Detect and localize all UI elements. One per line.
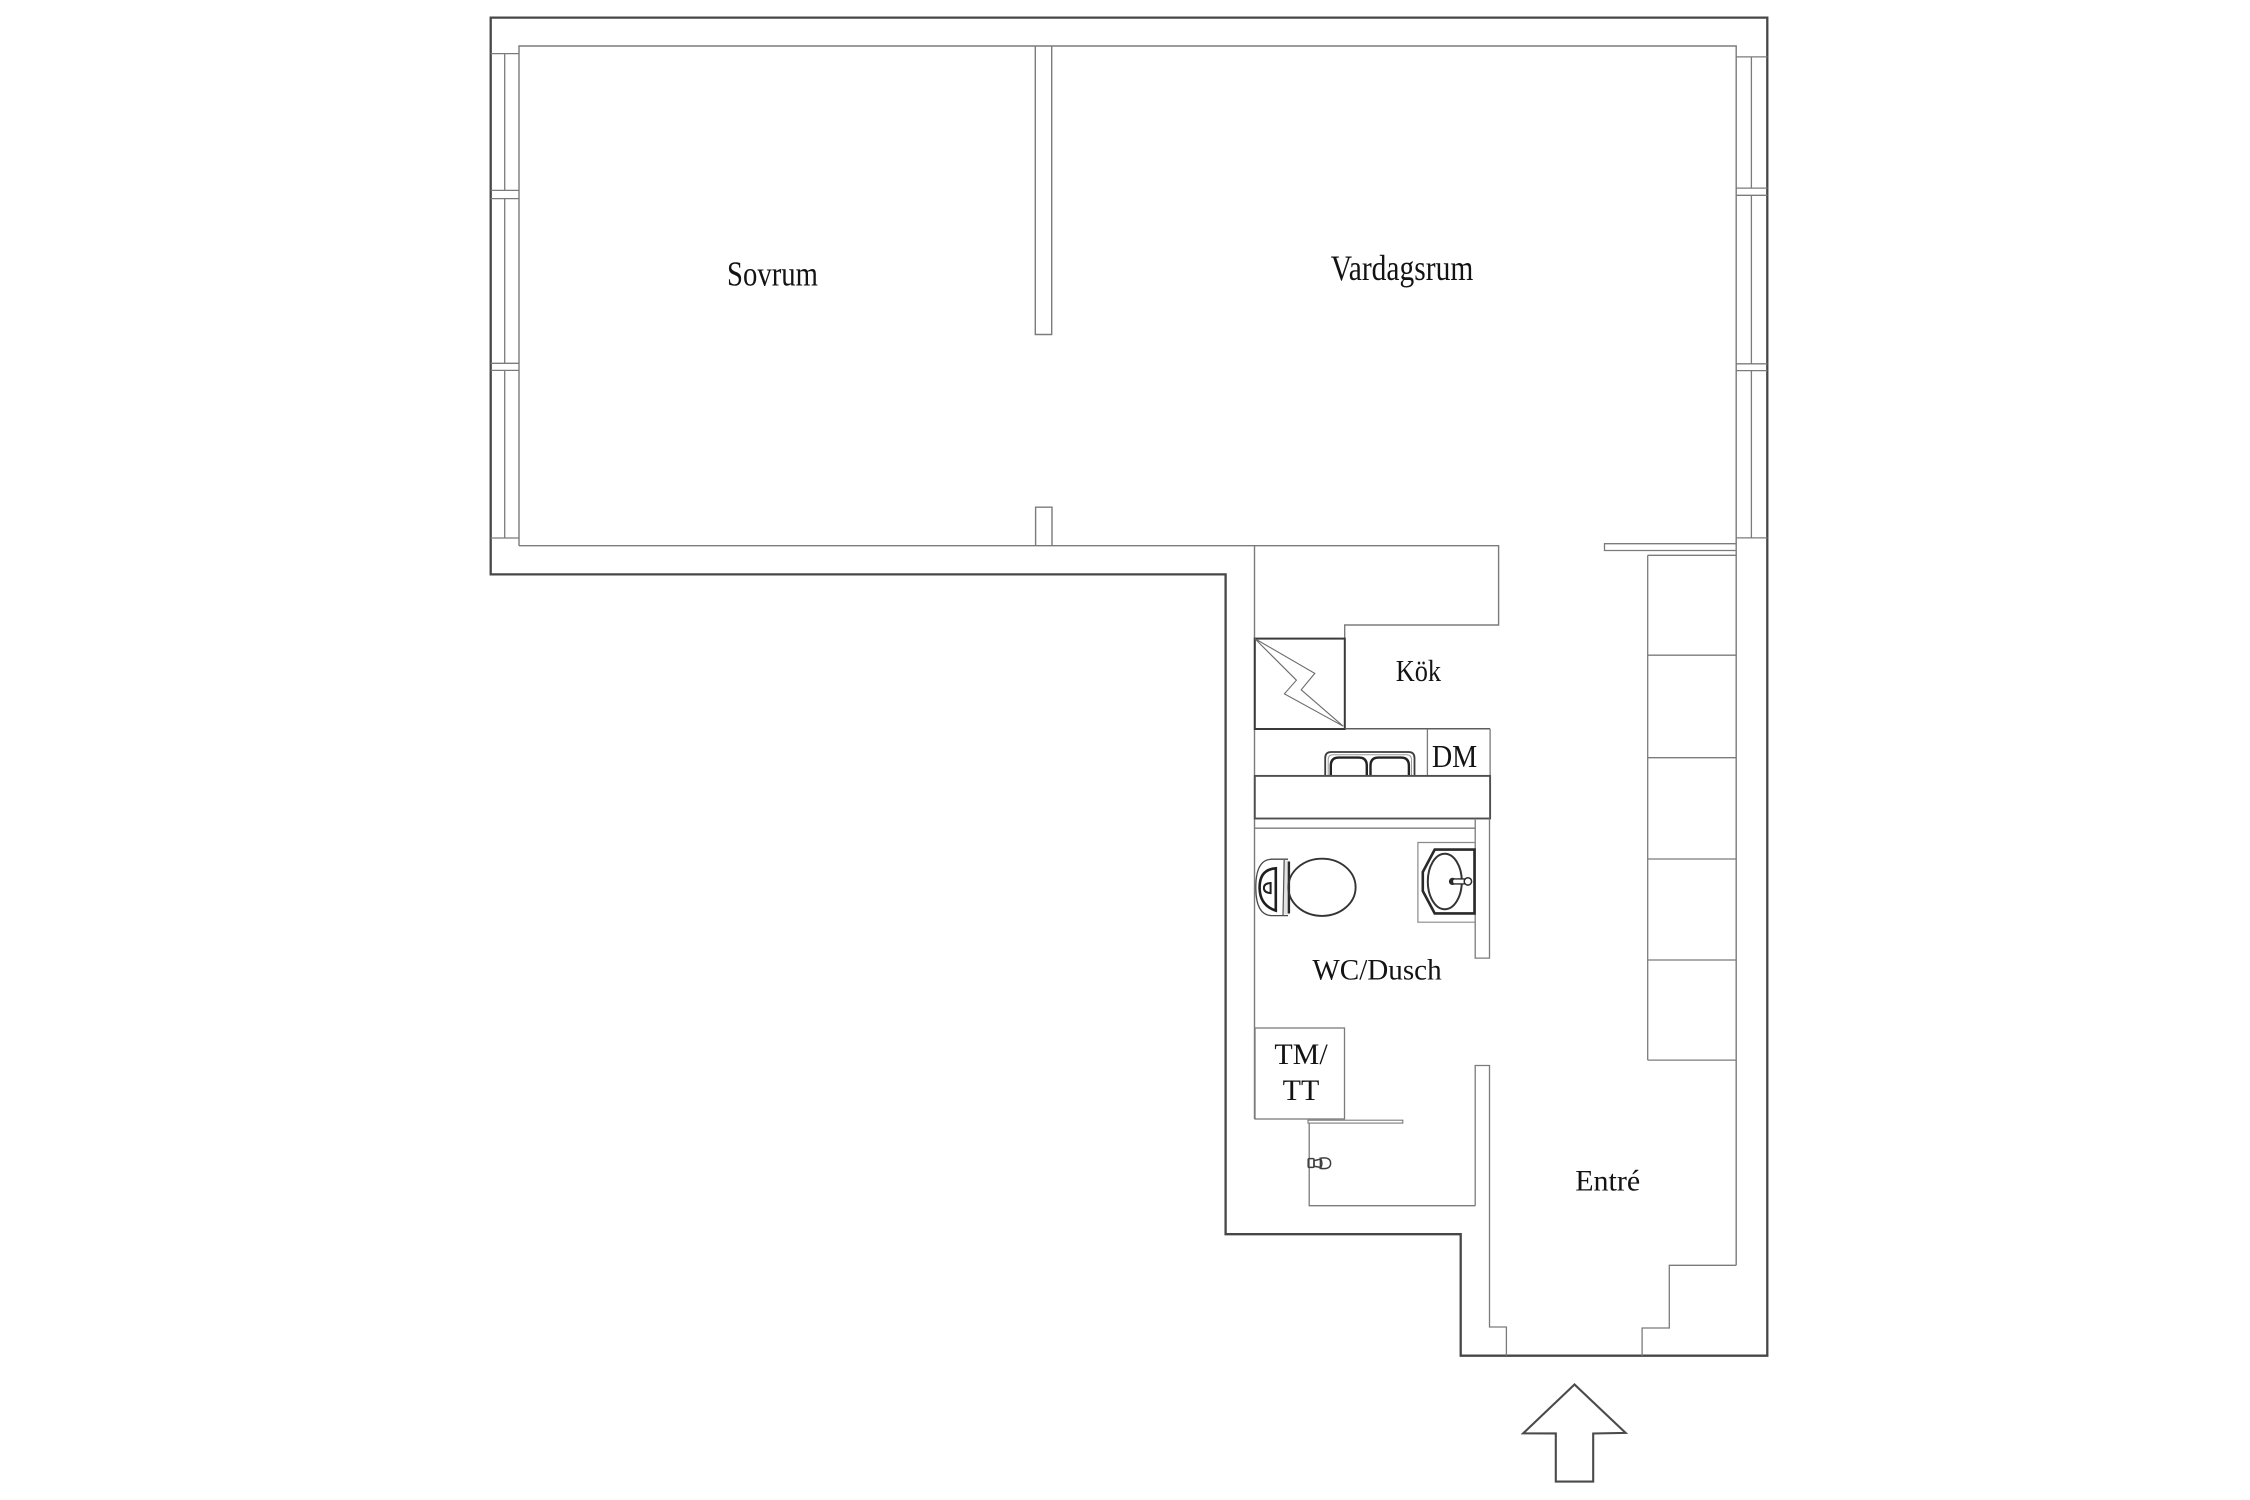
svg-text:Vardagsrum: Vardagsrum: [1331, 249, 1474, 288]
svg-text:Entré: Entré: [1575, 1164, 1640, 1197]
svg-text:WC/Dusch: WC/Dusch: [1312, 954, 1442, 986]
svg-text:Sovrum: Sovrum: [727, 254, 818, 293]
svg-text:Kök: Kök: [1396, 654, 1442, 688]
svg-text:TM/: TM/: [1274, 1038, 1328, 1071]
svg-text:TT: TT: [1283, 1074, 1320, 1107]
svg-text:DM: DM: [1432, 738, 1477, 774]
